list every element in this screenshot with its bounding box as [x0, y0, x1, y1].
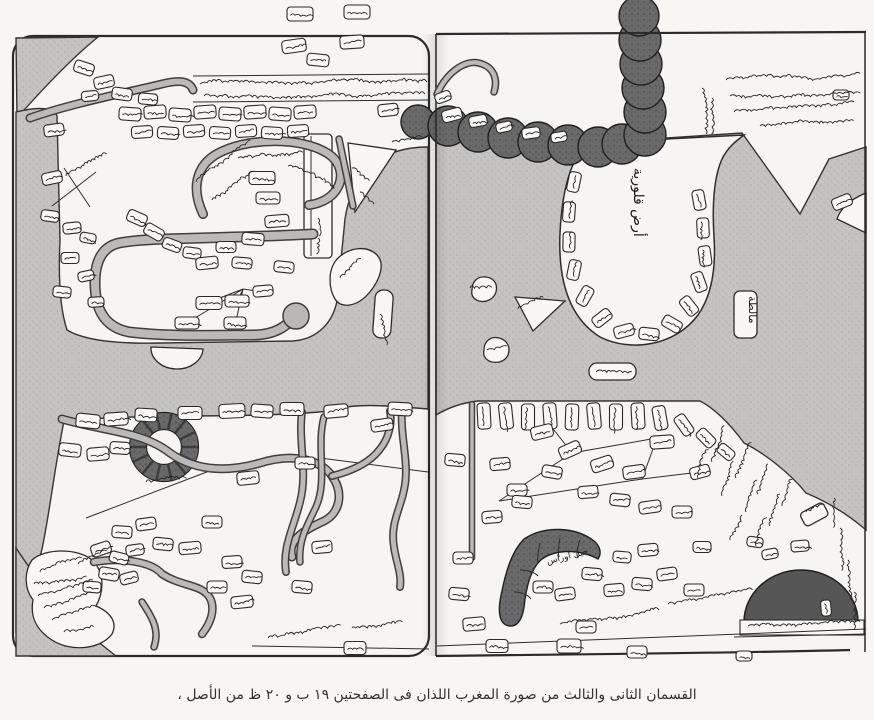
place-label-box — [344, 5, 370, 19]
place-label-box — [253, 285, 274, 298]
place-label-box — [232, 257, 253, 270]
place-label-box — [292, 580, 313, 594]
place-label-box — [344, 642, 366, 655]
place-label-box — [195, 256, 218, 270]
place-label-box — [462, 617, 485, 632]
page-fold-shadow — [422, 34, 448, 656]
place-label-box — [632, 577, 654, 591]
place-label-box — [582, 567, 605, 581]
place-label-box — [207, 581, 227, 593]
place-label-box — [638, 543, 660, 557]
place-label-box — [323, 403, 348, 418]
place-label-box — [157, 126, 180, 140]
place-label-box — [225, 295, 250, 307]
place-label-box — [125, 543, 146, 557]
place-label-box — [586, 402, 601, 429]
place-label-box — [486, 640, 508, 653]
place-label-box — [261, 126, 286, 140]
place-label-box — [562, 200, 575, 222]
place-label-box — [377, 103, 400, 117]
place-label-box — [453, 552, 473, 564]
place-label-box — [631, 403, 645, 430]
place-label-box — [81, 90, 99, 101]
place-label-box — [224, 317, 247, 329]
place-label-box — [88, 296, 105, 307]
place-label-box — [833, 90, 849, 100]
place-label-box — [622, 464, 646, 480]
place-label-box — [306, 53, 329, 67]
river-loop-bulb — [283, 303, 309, 329]
calabria-label: أرض قلورية — [630, 168, 648, 237]
place-label-box — [86, 447, 109, 462]
place-label-box — [736, 651, 752, 661]
place-label-box — [131, 125, 153, 138]
place-label-box — [693, 542, 711, 553]
place-label-box — [477, 403, 491, 430]
place-label-box — [370, 418, 394, 433]
place-label-box — [287, 124, 309, 137]
place-label-box — [83, 581, 102, 594]
place-label-box — [554, 587, 575, 602]
place-label-box — [610, 404, 623, 434]
place-label-box — [698, 245, 713, 268]
place-label-box — [265, 214, 290, 228]
place-label-box — [75, 413, 100, 429]
place-label-box — [482, 510, 503, 524]
place-label-box — [295, 457, 316, 469]
place-label-box — [235, 124, 257, 137]
place-label-box — [388, 402, 414, 416]
place-label-box — [449, 587, 472, 601]
place-label-box — [219, 403, 246, 418]
place-label-box — [194, 105, 217, 120]
place-label-box — [684, 584, 704, 596]
place-label-box — [609, 493, 630, 507]
place-label-box — [650, 435, 675, 450]
place-label-box — [522, 404, 535, 430]
place-label-box — [294, 105, 317, 120]
place-label-box — [222, 555, 244, 568]
place-label-box — [178, 407, 202, 420]
place-label-box — [638, 327, 660, 341]
place-label-box — [219, 107, 243, 122]
capsule-island — [372, 289, 393, 338]
place-label-box — [175, 317, 201, 329]
place-label-box — [312, 540, 333, 554]
place-label-box — [251, 404, 274, 419]
place-label-box — [112, 525, 133, 538]
place-label-box — [280, 403, 304, 416]
place-label-box — [58, 442, 81, 457]
place-label-box — [40, 209, 61, 223]
place-label-box — [135, 517, 156, 532]
place-label-box — [169, 108, 195, 123]
place-label-box — [256, 192, 280, 204]
place-label-box — [144, 105, 167, 120]
place-label-box — [557, 639, 584, 653]
place-label-box — [269, 107, 292, 122]
place-label-box — [507, 484, 530, 496]
place-label-box — [281, 38, 307, 54]
place-label-box — [104, 411, 132, 426]
place-label-box — [62, 222, 81, 235]
place-label-box — [138, 93, 158, 106]
place-label-box — [498, 402, 514, 432]
place-label-box — [638, 499, 662, 514]
place-label-box — [627, 646, 647, 658]
map-canvas: أرض قلورية مالطة جبل اوراس — [0, 0, 874, 720]
place-label-box — [119, 107, 143, 122]
manuscript-map-figure: أرض قلورية مالطة جبل اوراس القسمان الثان… — [0, 0, 874, 720]
place-label-box — [209, 126, 231, 139]
place-label-box — [111, 87, 132, 102]
place-label-box — [241, 570, 262, 584]
place-label-box — [565, 404, 579, 430]
place-label-box — [576, 621, 596, 633]
place-label-box — [52, 286, 71, 299]
place-label-box — [340, 35, 365, 50]
place-label-box — [249, 172, 275, 185]
place-label-box — [242, 232, 265, 246]
place-label-box — [490, 457, 511, 471]
place-label-box — [216, 242, 236, 253]
place-label-box — [791, 540, 812, 553]
place-label-box — [152, 537, 174, 551]
place-label-box — [236, 470, 259, 485]
place-label-box — [110, 441, 131, 454]
place-label-box — [656, 567, 677, 582]
place-label-box — [135, 408, 158, 422]
place-label-box — [244, 105, 267, 120]
place-label-box — [604, 583, 625, 597]
place-label-box — [179, 541, 202, 555]
place-label-box — [202, 516, 222, 528]
place-label-box — [613, 551, 632, 564]
place-label-box — [578, 485, 600, 499]
place-label-box — [563, 232, 575, 252]
place-label-box — [287, 7, 314, 21]
place-label-box — [672, 506, 693, 518]
place-label-box — [230, 595, 255, 609]
figure-caption: القسمان الثانى والثالث من صورة المغرب ال… — [37, 687, 837, 703]
place-label-box — [512, 495, 533, 509]
place-label-box — [61, 253, 79, 264]
place-label-box — [746, 536, 763, 548]
place-label-box — [521, 126, 540, 139]
malta-label: مالطة — [746, 296, 759, 324]
place-label-box — [183, 124, 205, 137]
place-label-box — [196, 297, 222, 310]
place-label-box — [820, 600, 831, 617]
place-label-box — [445, 453, 466, 467]
place-label-box — [761, 548, 778, 561]
round-island-1 — [472, 277, 497, 302]
place-label-box — [533, 581, 553, 593]
place-label-box — [696, 218, 709, 240]
place-label-box — [468, 114, 488, 128]
place-label-box — [273, 260, 294, 273]
